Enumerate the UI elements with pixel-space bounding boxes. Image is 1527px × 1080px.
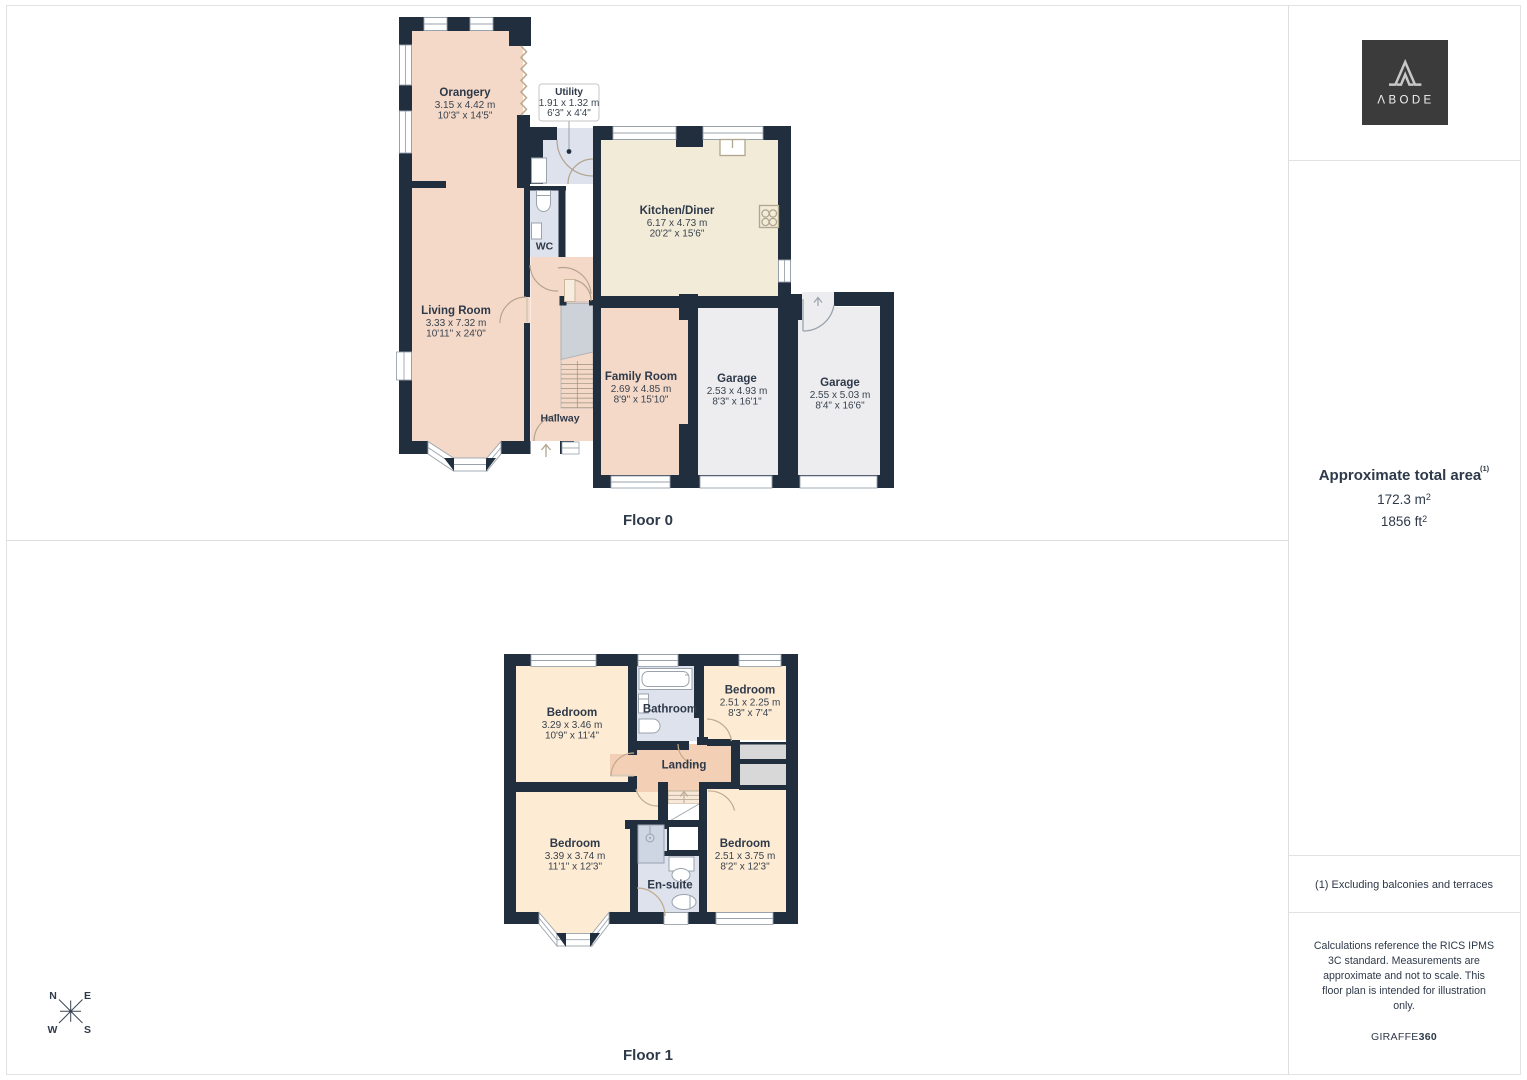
svg-text:Bedroom: Bedroom (547, 707, 597, 719)
svg-text:2.69 x 4.85 m: 2.69 x 4.85 m (611, 384, 672, 395)
svg-text:Bedroom: Bedroom (720, 838, 770, 850)
svg-text:8'4" x 16'6": 8'4" x 16'6" (815, 401, 865, 412)
svg-text:8'2" x 12'3": 8'2" x 12'3" (720, 862, 770, 873)
svg-text:8'3" x 16'1": 8'3" x 16'1" (712, 397, 762, 408)
svg-text:11'1" x 12'3": 11'1" x 12'3" (548, 862, 603, 873)
svg-text:Hallway: Hallway (540, 413, 579, 425)
svg-text:Kitchen/Diner: Kitchen/Diner (640, 205, 715, 217)
svg-text:floor plan is intended for ill: floor plan is intended for illustration (1322, 985, 1486, 997)
svg-text:Garage: Garage (820, 377, 860, 389)
svg-text:(1) Excluding balconies and te: (1) Excluding balconies and terraces (1315, 879, 1493, 891)
svg-text:Bedroom: Bedroom (550, 838, 600, 850)
svg-text:(1): (1) (1480, 464, 1490, 473)
svg-text:3.15 x 4.42 m: 3.15 x 4.42 m (435, 100, 496, 111)
svg-text:S: S (84, 1024, 91, 1036)
svg-text:Approximate total area: Approximate total area (1319, 467, 1482, 484)
svg-text:Bedroom: Bedroom (725, 685, 775, 697)
svg-text:only.: only. (1393, 1000, 1415, 1012)
svg-text:2.53 x 4.93 m: 2.53 x 4.93 m (707, 386, 768, 397)
svg-text:ΛBODE: ΛBODE (1377, 95, 1434, 107)
svg-text:Family Room: Family Room (605, 371, 677, 383)
svg-text:Bathroom: Bathroom (643, 704, 697, 716)
svg-text:3.39 x 3.74 m: 3.39 x 3.74 m (545, 851, 606, 862)
svg-text:E: E (84, 990, 91, 1002)
svg-text:8'9" x 15'10": 8'9" x 15'10" (614, 395, 669, 406)
svg-text:1856 ft2: 1856 ft2 (1381, 514, 1427, 529)
svg-text:8'3" x 7'4": 8'3" x 7'4" (728, 708, 772, 719)
svg-text:WC: WC (536, 241, 554, 253)
svg-text:2.51 x 3.75 m: 2.51 x 3.75 m (715, 851, 776, 862)
svg-text:3.33 x 7.32 m: 3.33 x 7.32 m (426, 318, 487, 329)
svg-text:Orangery: Orangery (439, 87, 491, 99)
svg-text:Landing: Landing (662, 760, 707, 772)
svg-text:20'2" x 15'6": 20'2" x 15'6" (650, 229, 705, 240)
svg-text:6'3" x 4'4": 6'3" x 4'4" (547, 108, 591, 119)
svg-text:Floor 1: Floor 1 (623, 1047, 673, 1064)
svg-text:10'11" x 24'0": 10'11" x 24'0" (426, 329, 486, 340)
svg-text:2.55 x 5.03 m: 2.55 x 5.03 m (810, 390, 871, 401)
svg-text:3.29 x 3.46 m: 3.29 x 3.46 m (542, 720, 603, 731)
svg-text:Garage: Garage (717, 373, 757, 385)
svg-text:N: N (49, 990, 57, 1002)
svg-text:En-suite: En-suite (647, 880, 692, 892)
svg-text:10'9" x 11'4": 10'9" x 11'4" (545, 731, 600, 742)
svg-text:10'3" x 14'5": 10'3" x 14'5" (438, 111, 493, 122)
svg-text:GIRAFFE360: GIRAFFE360 (1371, 1031, 1437, 1043)
svg-text:Living Room: Living Room (421, 305, 491, 317)
svg-text:172.3 m2: 172.3 m2 (1377, 492, 1431, 507)
svg-text:3C standard. Measurements are: 3C standard. Measurements are (1328, 955, 1480, 967)
svg-text:2.51 x 2.25 m: 2.51 x 2.25 m (720, 698, 781, 709)
svg-text:approximate and not to scale.: approximate and not to scale. This (1323, 970, 1485, 982)
svg-text:Calculations reference the RIC: Calculations reference the RICS IPMS (1314, 940, 1494, 952)
svg-text:6.17 x 4.73 m: 6.17 x 4.73 m (647, 218, 708, 229)
svg-text:Utility: Utility (555, 87, 583, 98)
svg-text:Floor 0: Floor 0 (623, 512, 673, 529)
svg-text:W: W (48, 1024, 58, 1036)
